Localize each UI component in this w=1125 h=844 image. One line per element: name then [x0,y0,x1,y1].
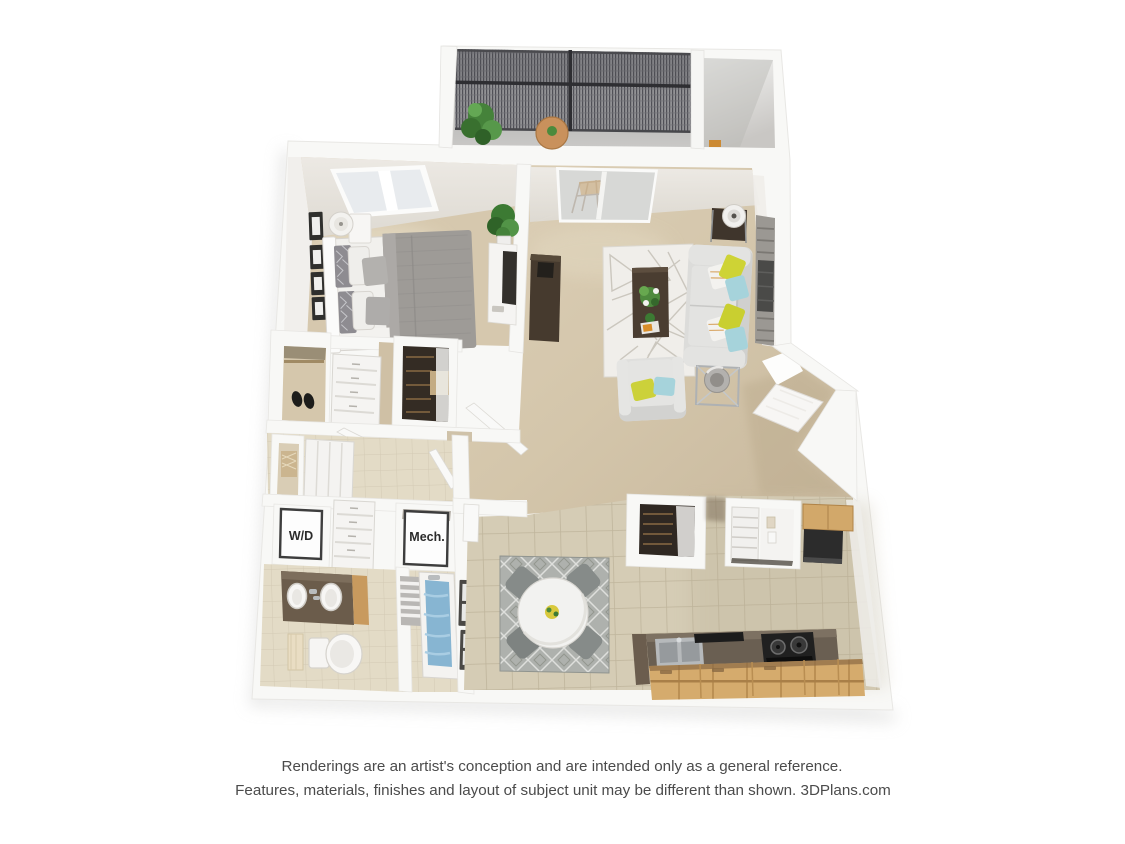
svg-text:W/D: W/D [289,529,313,543]
svg-text:Mech.: Mech. [409,530,444,544]
svg-text:Renderings are an artist's con: Renderings are an artist's conception an… [282,758,843,775]
svg-text:Features, materials, finishes: Features, materials, finishes and layout… [235,782,891,799]
